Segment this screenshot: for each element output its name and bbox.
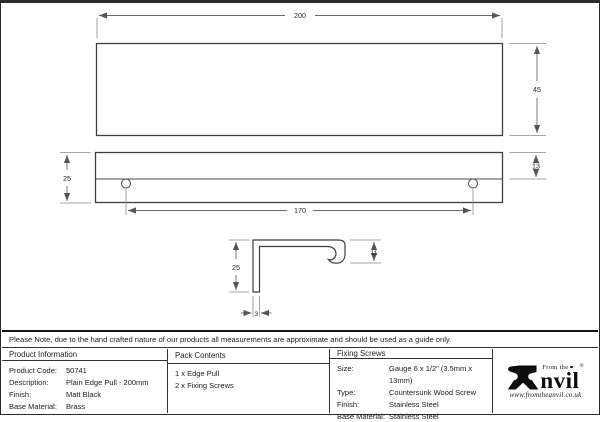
from-the-anvil-logo: From the nvil ® www.fromtheanvil.co.uk	[500, 363, 592, 399]
section-profile: 25 11 3	[229, 240, 381, 318]
row-label: Size:	[337, 363, 389, 387]
table-row: Size: Gauge 6 x 1/2" (3.5mm x 13mm)	[337, 363, 492, 387]
info-table: Product Information Product Code: 50741 …	[2, 349, 598, 413]
logo-wordmark: nvil	[540, 371, 579, 390]
dim-hole-spacing-label: 170	[294, 206, 306, 215]
table-row: Finish: Matt Black	[9, 389, 167, 401]
note-text: Please Note, due to the hand crafted nat…	[9, 335, 451, 344]
pack-contents-header: Pack Contents	[168, 349, 329, 364]
front-view: 25 13 170	[60, 153, 546, 216]
list-item: 2 x Fixing Screws	[175, 380, 329, 392]
anvil-icon	[507, 363, 539, 390]
pack-contents-column: Pack Contents 1 x Edge Pull 2 x Fixing S…	[168, 349, 330, 413]
pack-contents-body: 1 x Edge Pull 2 x Fixing Screws	[168, 364, 329, 392]
row-value: Plain Edge Pull - 200mm	[66, 377, 167, 389]
dim-hook-depth-label: 11	[371, 250, 378, 257]
dim-depth-label: 25	[63, 174, 71, 183]
dim-profile-height-label: 25	[232, 263, 240, 272]
row-value: Stainless Steel	[389, 399, 492, 411]
dim-hook-depth: 11	[350, 240, 381, 263]
logo-url: www.fromtheanvil.co.uk	[500, 391, 592, 399]
table-row: Product Code: 50741	[9, 365, 167, 377]
dim-top-section-label: 13	[532, 162, 540, 171]
row-label: Base Material:	[9, 401, 66, 413]
product-spec-sheet: 200 45 25	[0, 0, 600, 422]
dim-width: 200	[97, 11, 502, 38]
row-value: Gauge 6 x 1/2" (3.5mm x 13mm)	[389, 363, 492, 387]
front-view-outline	[96, 153, 503, 203]
dim-width-label: 200	[294, 11, 306, 20]
fixing-screws-header: Fixing Screws	[330, 349, 492, 359]
product-information-column: Product Information Product Code: 50741 …	[2, 349, 168, 413]
product-information-header: Product Information	[2, 349, 167, 361]
profile-outline	[253, 240, 345, 292]
brand-cell: From the nvil ® www.fromtheanvil.co.uk	[493, 349, 598, 413]
dim-thickness-label: 3	[254, 311, 258, 318]
dim-thickness: 3	[241, 296, 272, 318]
table-row: Finish: Stainless Steel	[337, 399, 492, 411]
technical-drawing: 200 45 25	[0, 0, 600, 330]
top-view-outline	[97, 44, 503, 136]
table-row: Base Material: Brass	[9, 401, 167, 413]
table-row: Type: Countersunk Wood Screw	[337, 387, 492, 399]
row-value: 50741	[66, 365, 167, 377]
dim-depth: 25	[60, 153, 91, 204]
row-label: Description:	[9, 377, 66, 389]
fixing-screws-column: Fixing Screws Size: Gauge 6 x 1/2" (3.5m…	[330, 349, 493, 413]
row-value: Countersunk Wood Screw	[389, 387, 492, 399]
row-label: Type:	[337, 387, 389, 399]
product-information-body: Product Code: 50741 Description: Plain E…	[2, 361, 167, 413]
table-row: Description: Plain Edge Pull - 200mm	[9, 377, 167, 389]
row-label: Base Material:	[337, 411, 389, 422]
fixing-screws-body: Size: Gauge 6 x 1/2" (3.5mm x 13mm) Type…	[330, 359, 492, 422]
table-row: Base Material: Stainless Steel	[337, 411, 492, 422]
row-label: Product Code:	[9, 365, 66, 377]
row-value: Matt Black	[66, 389, 167, 401]
row-label: Finish:	[337, 399, 389, 411]
registered-mark: ®	[579, 363, 583, 369]
dim-profile-height: 25	[229, 240, 249, 292]
row-label: Finish:	[9, 389, 66, 401]
dim-height: 45	[509, 44, 546, 136]
list-item: 1 x Edge Pull	[175, 368, 329, 380]
row-value: Stainless Steel	[389, 411, 492, 422]
top-view: 200 45	[97, 11, 547, 136]
row-value: Brass	[66, 401, 167, 413]
note-bar: Please Note, due to the hand crafted nat…	[2, 330, 598, 348]
dim-top-section: 13	[509, 153, 546, 180]
dim-height-label: 45	[533, 85, 541, 94]
